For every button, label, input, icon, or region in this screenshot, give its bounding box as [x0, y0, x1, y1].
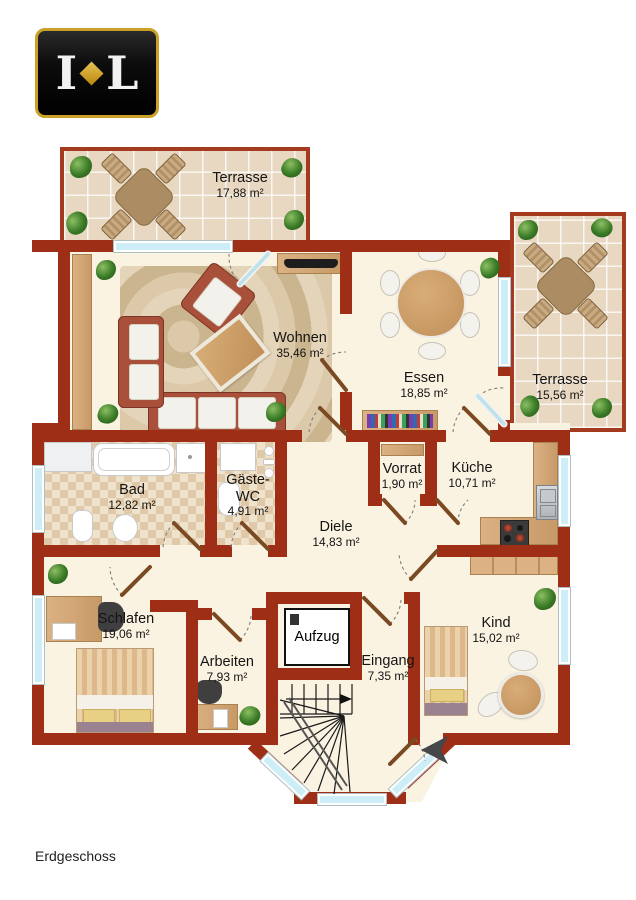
double-bed-icon — [76, 648, 154, 733]
wall-segment — [266, 592, 362, 604]
wall-segment — [404, 592, 420, 604]
wall-segment — [58, 240, 70, 435]
window-icon — [559, 456, 570, 526]
room-label-aufzug: Aufzug — [294, 629, 339, 645]
wall-segment — [346, 430, 446, 442]
room-label-vorrat: Vorrat1,90 m² — [367, 461, 437, 491]
dining-chair-icon — [380, 312, 400, 338]
toilet-icon — [72, 510, 93, 542]
room-label-terrasse-top: Terrasse17,88 m² — [195, 170, 285, 200]
company-logo: I L — [35, 28, 159, 118]
patio-set-right — [522, 245, 608, 325]
room-label-kind: Kind15,02 m² — [456, 615, 536, 645]
window-icon — [559, 588, 570, 664]
logo-diamond-icon — [80, 61, 104, 85]
wall-segment — [205, 442, 217, 545]
wood-floor-strip — [72, 254, 92, 430]
window-icon — [33, 466, 44, 532]
wall-segment — [340, 392, 352, 430]
loveseat-icon — [118, 316, 164, 408]
wall-segment — [368, 494, 382, 506]
room-label-terrasse-right: Terrasse15,56 m² — [515, 372, 605, 402]
bathtub-icon — [93, 443, 175, 476]
wall-segment — [44, 545, 160, 557]
logo-letter-l: L — [106, 46, 138, 100]
wall-segment — [490, 430, 498, 442]
kid-table-icon — [498, 672, 544, 718]
elevator-box: Aufzug — [284, 608, 350, 666]
wall-segment — [200, 545, 232, 557]
room-label-gaeste-wc: Gäste-WC4,91 m² — [217, 472, 279, 519]
wall-segment — [268, 545, 287, 557]
wall-segment — [252, 608, 266, 620]
washbasin-counter-icon — [44, 442, 92, 472]
window-icon — [33, 596, 44, 684]
room-label-diele: Diele14,83 m² — [296, 519, 376, 549]
wc-washbasin-icon — [220, 443, 256, 471]
shower-icon — [176, 443, 206, 473]
room-label-eingang: Eingang7,35 m² — [350, 653, 426, 683]
room-label-arbeiten: Arbeiten7,93 m² — [187, 654, 267, 684]
room-label-essen: Essen18,85 m² — [384, 370, 464, 400]
room-label-wohnen: Wohnen35,46 m² — [255, 330, 345, 360]
patio-set-top — [100, 156, 186, 236]
kitchen-sink-icon — [536, 485, 558, 520]
wall-segment — [420, 494, 437, 506]
wall-segment — [437, 545, 570, 557]
tv-sideboard-icon — [277, 253, 345, 274]
bookshelf-icon — [362, 410, 438, 432]
wall-segment — [32, 733, 272, 745]
stove-icon — [500, 520, 529, 547]
window-icon — [499, 278, 510, 366]
vorrat-shelf-icon — [381, 444, 424, 456]
bidet-icon — [112, 514, 138, 542]
dining-chair-icon — [418, 342, 446, 360]
wall-segment — [498, 240, 510, 278]
elevator-detail-icon — [290, 614, 299, 625]
books-icon — [367, 414, 433, 428]
wall-segment — [32, 240, 510, 252]
wc-mirror-icon — [264, 446, 274, 456]
window-icon — [114, 241, 232, 252]
window-icon — [318, 794, 386, 805]
room-label-kueche: Küche10,71 m² — [432, 460, 512, 490]
wc-towel-icon — [263, 459, 275, 465]
wall-segment — [44, 430, 302, 442]
dining-table-icon — [396, 268, 466, 338]
dining-set — [366, 240, 492, 364]
tv-icon — [284, 259, 338, 268]
wall-segment — [443, 733, 570, 745]
room-label-schlafen: Schlafen19,06 m² — [86, 611, 166, 641]
wall-segment — [340, 252, 352, 314]
wall-segment — [266, 668, 362, 680]
floor-title: Erdgeschoss — [35, 848, 116, 864]
floor-plan-page: I L — [0, 0, 636, 900]
logo-letter-i: I — [56, 46, 78, 100]
room-label-bad: Bad12,82 m² — [92, 482, 172, 512]
